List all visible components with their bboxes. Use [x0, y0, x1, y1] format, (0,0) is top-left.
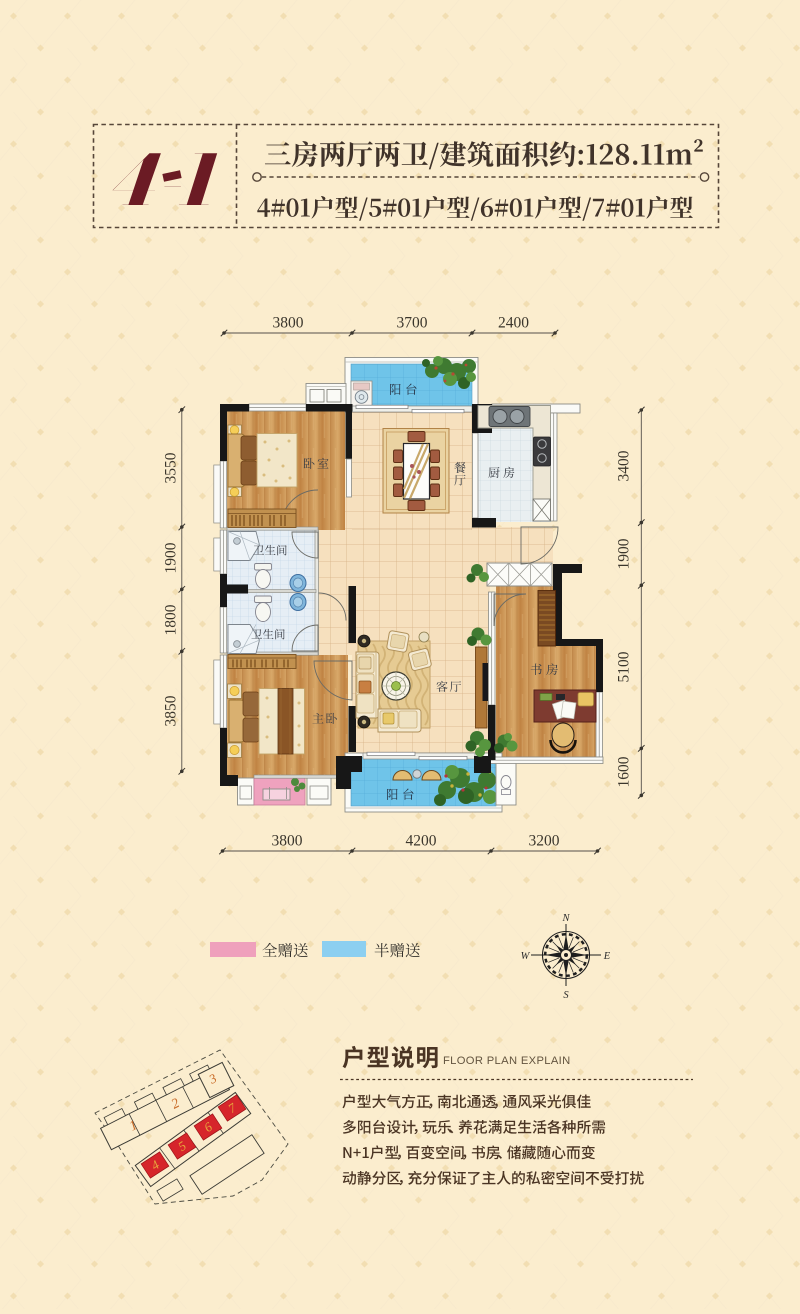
- svg-text:FLOOR PLAN EXPLAIN: FLOOR PLAN EXPLAIN: [443, 1055, 571, 1067]
- svg-text:W: W: [521, 951, 531, 962]
- svg-text:3700: 3700: [397, 315, 428, 332]
- svg-text:1600: 1600: [616, 756, 633, 787]
- svg-text:3850: 3850: [163, 695, 180, 726]
- svg-text:5100: 5100: [616, 651, 633, 682]
- svg-text:N: N: [561, 913, 570, 924]
- svg-text:S: S: [563, 990, 569, 1001]
- svg-text:4200: 4200: [406, 833, 437, 850]
- svg-text:3400: 3400: [616, 450, 633, 481]
- svg-text:1900: 1900: [163, 542, 180, 573]
- svg-text:3800: 3800: [272, 833, 303, 850]
- svg-text:3800: 3800: [273, 315, 304, 332]
- svg-text:E: E: [603, 951, 611, 962]
- svg-text:3550: 3550: [163, 452, 180, 483]
- svg-text:1800: 1800: [163, 604, 180, 635]
- svg-text:2400: 2400: [498, 315, 529, 332]
- svg-text:1900: 1900: [616, 538, 633, 569]
- svg-text:3200: 3200: [529, 833, 560, 850]
